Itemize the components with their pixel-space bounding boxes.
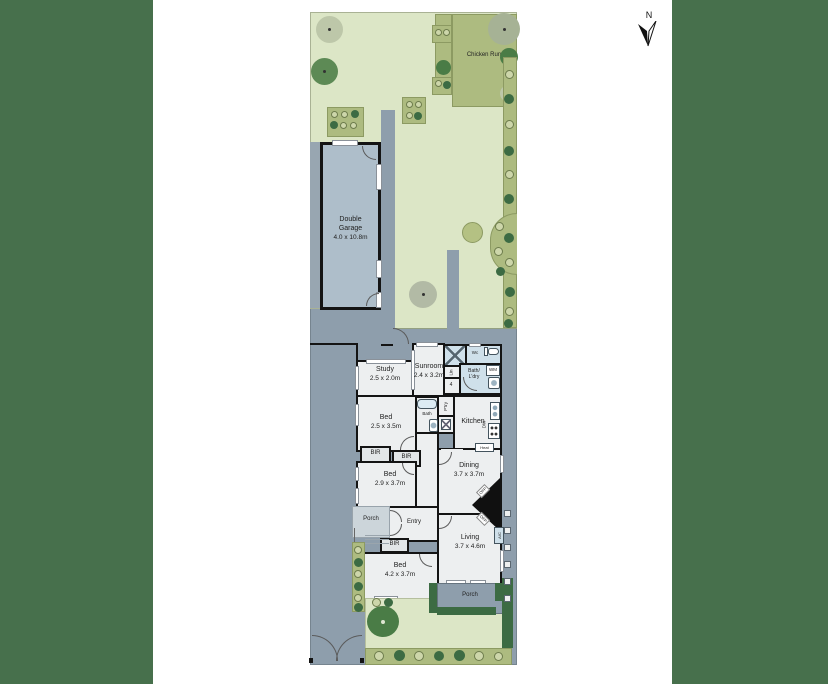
tree-icon xyxy=(311,58,338,85)
room-dims: 3.7 x 4.6m xyxy=(448,543,492,551)
plant-icon xyxy=(350,122,357,129)
room-name: P'try xyxy=(444,402,449,411)
entry-label: Entry xyxy=(396,519,432,527)
plant-icon xyxy=(374,651,384,661)
shrub-icon xyxy=(436,60,451,75)
garden-path xyxy=(447,250,459,332)
plant-icon xyxy=(505,70,514,79)
gate-post xyxy=(360,658,364,663)
plant-icon xyxy=(494,652,503,661)
aircon-label: A/C xyxy=(496,532,501,539)
fence-post-icon xyxy=(504,510,511,517)
room-dims: 4.2 x 3.7m xyxy=(380,571,420,579)
bath-laundry-label: Bath/ L'dry xyxy=(461,369,487,380)
tree-icon xyxy=(488,13,520,45)
room-name: Lin xyxy=(450,369,455,375)
shrub-icon xyxy=(504,146,514,156)
plant-icon xyxy=(505,120,514,129)
vanity-icon xyxy=(429,419,438,432)
side-path xyxy=(310,142,320,308)
shrub-icon xyxy=(504,94,514,104)
plant-icon xyxy=(354,546,362,554)
fence-wall xyxy=(381,344,393,346)
laundry-trough-icon xyxy=(488,377,500,389)
plant-icon xyxy=(414,651,424,661)
window xyxy=(355,467,359,481)
garage-window xyxy=(376,260,382,278)
north-arrow-icon xyxy=(636,21,660,48)
dishwasher-label: DW xyxy=(480,416,490,432)
window xyxy=(500,455,504,473)
bed-small-label: Bed 2.5 x 3.5m xyxy=(366,414,406,431)
plant-icon xyxy=(495,222,504,231)
room-name: DW xyxy=(483,420,488,428)
plant-icon xyxy=(406,112,413,119)
room-dims: 3.7 x 3.7m xyxy=(447,471,491,479)
living-label: Living 3.7 x 4.6m xyxy=(448,534,492,551)
room-name: Bed xyxy=(380,562,420,571)
shrub-icon xyxy=(454,650,465,661)
room-name: Living xyxy=(448,534,492,543)
garden-bed xyxy=(402,97,426,124)
hedge xyxy=(429,583,437,613)
steps-count-label: 4 xyxy=(445,383,457,389)
window xyxy=(469,343,481,347)
fence-wall xyxy=(310,343,357,345)
shrub-icon xyxy=(434,651,444,661)
garage-window xyxy=(332,140,358,146)
kitchen-sink-icon xyxy=(490,402,500,420)
front-porch-label: Porch xyxy=(452,592,488,600)
shrub-icon xyxy=(354,558,363,567)
tree-icon xyxy=(316,16,343,43)
garden-path xyxy=(381,110,395,310)
chicken-run-label: Chicken Run xyxy=(466,52,502,60)
plant-icon xyxy=(505,307,514,316)
shrub-icon xyxy=(504,233,514,243)
entry-porch-label: Porch xyxy=(354,516,388,524)
bir-label: BIR xyxy=(392,454,421,462)
room-dims: 2.5 x 3.5m xyxy=(366,423,406,431)
plant-icon xyxy=(435,29,442,36)
wc-label: Wc xyxy=(469,351,481,356)
shrub-icon xyxy=(496,267,505,276)
room-name: L'dry xyxy=(461,375,487,381)
linen-label: Lin xyxy=(443,365,461,379)
hedge xyxy=(437,607,496,615)
plant-icon xyxy=(354,570,362,578)
shrub-icon xyxy=(330,121,338,129)
plant-icon xyxy=(341,111,348,118)
gate-post xyxy=(309,658,313,663)
right-matte xyxy=(672,0,828,684)
room-name: Study xyxy=(358,366,412,375)
tree-icon xyxy=(462,222,483,243)
plant-icon xyxy=(505,170,514,179)
study-label: Study 2.5 x 2.0m xyxy=(358,366,412,383)
window xyxy=(355,488,359,504)
plant-icon xyxy=(354,594,362,602)
bed-mid-label: Bed 2.9 x 3.7m xyxy=(370,471,410,488)
shrub-icon xyxy=(354,582,363,591)
fence-post-icon xyxy=(504,527,511,534)
bathtub-icon xyxy=(417,399,437,409)
shrub-icon xyxy=(504,194,514,204)
plant-icon xyxy=(435,80,442,87)
garage-dims: 4.0 x 10.8m xyxy=(324,234,377,242)
window xyxy=(355,404,359,426)
fence-post-icon xyxy=(504,544,511,551)
room-name: Dining xyxy=(447,462,491,471)
garage-name: Double Garage xyxy=(334,216,368,234)
bir-label: BIR xyxy=(360,450,391,458)
shrub-icon xyxy=(504,319,513,328)
shrub-icon xyxy=(354,603,363,612)
hallway xyxy=(415,432,439,516)
window xyxy=(416,342,438,347)
room-dims: 2.5 x 2.0m xyxy=(358,375,412,383)
plant-icon xyxy=(406,101,413,108)
fridge-icon xyxy=(441,419,451,430)
plant-icon xyxy=(494,247,503,256)
window xyxy=(366,359,406,364)
tree-icon xyxy=(367,606,399,637)
aircon-unit: A/C xyxy=(494,527,504,544)
room-name: Bed xyxy=(370,471,410,480)
fence-post-icon xyxy=(504,595,511,602)
hedge xyxy=(502,578,513,648)
shrub-icon xyxy=(394,650,405,661)
shrub-icon xyxy=(443,81,451,89)
shrub-icon xyxy=(505,287,515,297)
bath-label: Bath xyxy=(416,412,438,417)
bir-label: BIR xyxy=(380,541,409,549)
pantry-label: P'try xyxy=(437,395,455,417)
plant-icon xyxy=(372,598,381,607)
shrub-icon xyxy=(351,110,359,118)
plant-icon xyxy=(340,122,347,129)
shrub-icon xyxy=(414,112,422,120)
floorplan-image: N Chicken Run xyxy=(0,0,828,684)
fence-post-icon xyxy=(504,578,511,585)
plant-icon xyxy=(415,101,422,108)
garage-window xyxy=(376,164,382,190)
toilet-icon xyxy=(488,348,499,355)
garage-label: Double Garage 4.0 x 10.8m xyxy=(324,216,377,242)
north-label: N xyxy=(641,10,657,20)
plant-icon xyxy=(505,258,514,267)
tree-icon xyxy=(409,281,437,308)
room-dims: 2.9 x 3.7m xyxy=(370,480,410,488)
plant-icon xyxy=(443,29,450,36)
dining-label: Dining 3.7 x 3.7m xyxy=(447,462,491,479)
plant-icon xyxy=(474,651,484,661)
room-name: Bed xyxy=(366,414,406,423)
heater-label: Heat xyxy=(475,445,494,450)
plant-icon xyxy=(331,111,338,118)
porch-step-arrow xyxy=(354,528,355,542)
bed-front-label: Bed 4.2 x 3.7m xyxy=(380,562,420,579)
shrub-icon xyxy=(384,598,393,607)
wm-label: WM xyxy=(486,368,500,373)
left-matte xyxy=(0,0,153,684)
fence-post-icon xyxy=(504,561,511,568)
